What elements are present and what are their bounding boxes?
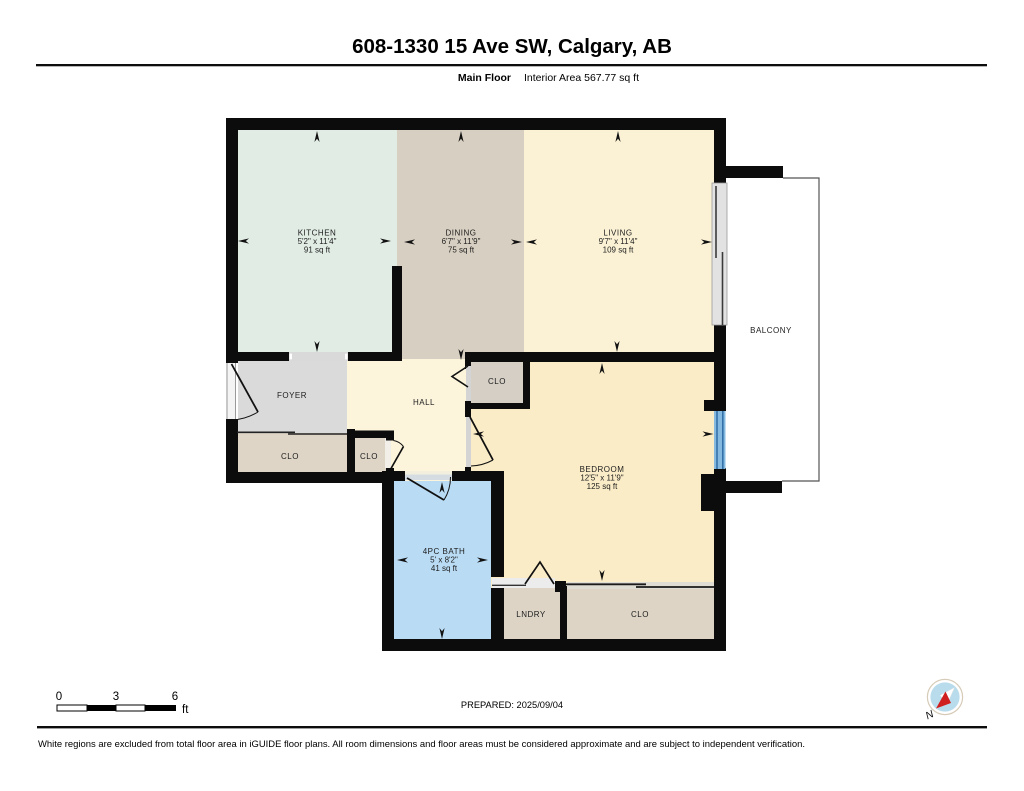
- svg-text:ft: ft: [182, 704, 189, 716]
- svg-text:12'5" x 11'9": 12'5" x 11'9": [580, 474, 623, 483]
- svg-text:4PC BATH: 4PC BATH: [423, 547, 466, 556]
- svg-text:41 sq ft: 41 sq ft: [431, 564, 458, 573]
- svg-text:KITCHEN: KITCHEN: [298, 228, 337, 237]
- svg-text:6'7" x 11'9": 6'7" x 11'9": [442, 237, 481, 246]
- svg-text:Main Floor: Main Floor: [458, 72, 511, 84]
- svg-text:HALL: HALL: [413, 398, 435, 407]
- svg-text:9'7" x 11'4": 9'7" x 11'4": [599, 237, 638, 246]
- svg-text:75 sq ft: 75 sq ft: [448, 246, 475, 255]
- svg-text:5'2" x 11'4": 5'2" x 11'4": [298, 237, 337, 246]
- svg-text:LNDRY: LNDRY: [516, 610, 546, 619]
- svg-text:6: 6: [172, 691, 178, 703]
- svg-text:White regions are excluded fro: White regions are excluded from total fl…: [38, 739, 805, 750]
- svg-text:CLO: CLO: [631, 610, 649, 619]
- svg-text:PREPARED: 2025/09/04: PREPARED: 2025/09/04: [461, 700, 563, 710]
- svg-text:LIVING: LIVING: [603, 228, 632, 237]
- svg-text:CLO: CLO: [488, 377, 506, 386]
- svg-text:3: 3: [113, 691, 119, 703]
- svg-text:0: 0: [56, 691, 62, 703]
- svg-text:BEDROOM: BEDROOM: [580, 465, 625, 474]
- svg-text:608-1330 15 Ave SW, Calgary, A: 608-1330 15 Ave SW, Calgary, AB: [352, 35, 672, 58]
- svg-text:109 sq ft: 109 sq ft: [603, 246, 634, 255]
- svg-text:CLO: CLO: [360, 452, 378, 461]
- svg-text:5' x 8'2": 5' x 8'2": [430, 556, 458, 565]
- svg-text:FOYER: FOYER: [277, 391, 307, 400]
- svg-text:Interior Area 567.77 sq ft: Interior Area 567.77 sq ft: [524, 72, 639, 84]
- svg-text:DINING: DINING: [446, 228, 477, 237]
- svg-text:91 sq ft: 91 sq ft: [304, 246, 331, 255]
- svg-text:CLO: CLO: [281, 452, 299, 461]
- svg-text:125 sq ft: 125 sq ft: [587, 482, 618, 491]
- svg-text:BALCONY: BALCONY: [750, 326, 792, 335]
